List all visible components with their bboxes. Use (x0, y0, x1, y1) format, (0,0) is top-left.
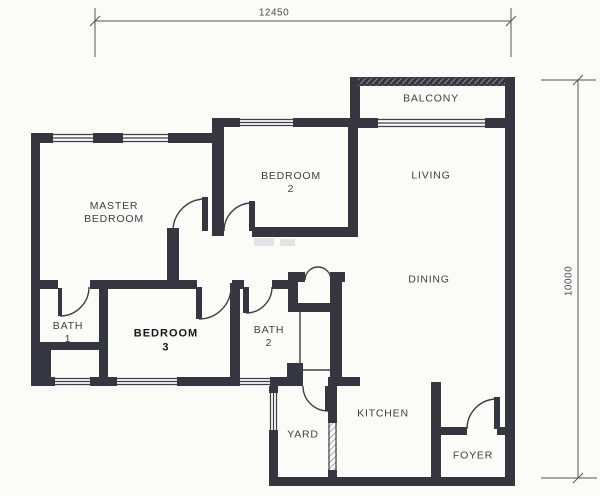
room-label-line: 2 (261, 183, 321, 196)
window-bath1 (55, 377, 90, 386)
ghost-mark (254, 238, 274, 246)
room-label-line: 1 (53, 333, 83, 346)
wall-bedroom2-right (348, 118, 358, 237)
door-leaf-bath2 (243, 287, 249, 313)
wall-kitchen-top (328, 377, 360, 386)
door-arc-foyer-entrance (467, 399, 497, 429)
room-label-line: 2 (254, 337, 284, 350)
wall-bottom-right-wing (269, 477, 515, 486)
door-arc-bedroom2 (224, 203, 252, 231)
room-label-kitchen: KITCHEN (357, 407, 409, 420)
room-label-line: BEDROOM (84, 213, 144, 226)
room-label-balcony: BALCONY (403, 92, 459, 105)
window-yard-left (269, 393, 278, 430)
door-arc-bath2 (246, 287, 272, 313)
room-label-master-bedroom: MASTER BEDROOM (84, 200, 144, 226)
room-label-line: LIVING (411, 169, 450, 182)
room-label-line: BALCONY (403, 92, 459, 105)
arch-niche (305, 267, 331, 280)
room-label-line: BATH (53, 320, 83, 333)
room-label-line: DINING (408, 273, 450, 286)
room-label-bedroom-3: BEDROOM 3 (134, 327, 198, 355)
door-leaf-foyer (494, 397, 500, 429)
room-label-line: BEDROOM (134, 327, 198, 341)
door-leaf-bedroom3 (196, 287, 202, 319)
wall-bath1-bedroom3 (99, 283, 108, 386)
room-label-line: BATH (254, 324, 284, 337)
window-bedroom2 (240, 118, 293, 127)
wall-bedroom2-left (212, 118, 224, 236)
room-label-foyer: FOYER (453, 449, 493, 462)
wall-bedroom2-south (252, 227, 358, 237)
wall-master-east-lower (167, 228, 179, 287)
wall-mid-right (330, 272, 342, 377)
room-label-dining: DINING (408, 273, 450, 286)
room-label-line: FOYER (453, 449, 493, 462)
room-label-line: MASTER (84, 200, 144, 213)
window-yard-kitchen (328, 423, 337, 470)
room-label-bedroom-2: BEDROOM 2 (261, 170, 321, 196)
shaft (300, 312, 330, 370)
wall-right-exterior (505, 77, 515, 486)
room-label-line: YARD (287, 428, 319, 441)
wall-bedroom3-bath2 (230, 283, 240, 386)
wall-hall-seg1 (31, 280, 58, 289)
wall-foyer-top (441, 427, 467, 435)
window-bath2 (240, 377, 270, 386)
room-label-line: BEDROOM (261, 170, 321, 183)
door-arc-yard (303, 386, 328, 411)
ghost-mark (280, 239, 295, 246)
ghost-marks (254, 238, 295, 246)
window-master-1 (53, 133, 93, 143)
wall-bath1-stub (38, 350, 51, 380)
wall-niche-bottom (290, 303, 330, 312)
window-balcony-railing (358, 77, 505, 86)
dimension-width-label: 12450 (259, 8, 289, 19)
window-living-sliding (378, 118, 485, 128)
floor-plan: MASTER BEDROOM BEDROOM 2 BEDROOM 3 BATH … (0, 0, 600, 496)
room-label-bath-2: BATH 2 (254, 324, 284, 350)
room-label-bath-1: BATH 1 (53, 320, 83, 346)
wall-left-exterior (31, 133, 40, 386)
window-bedroom3 (117, 377, 177, 386)
wall-foyer-left (431, 382, 441, 486)
floor-plan-drawing (0, 0, 600, 496)
door-arc-bedroom3 (199, 287, 231, 319)
door-arc-master (173, 199, 205, 231)
window-master-2 (123, 133, 168, 143)
door-arc-bath1 (60, 287, 89, 316)
room-label-line: 3 (134, 341, 198, 355)
door-leaf-yard (325, 386, 330, 411)
room-label-yard: YARD (287, 428, 319, 441)
door-leaf-bath1 (58, 288, 62, 316)
wall-hall-seg4 (272, 280, 290, 289)
room-label-line: KITCHEN (357, 407, 409, 420)
dimension-lines (90, 8, 597, 483)
room-label-living: LIVING (411, 169, 450, 182)
dimension-height-label: 10000 (564, 266, 575, 296)
door-leaf-bedroom2 (249, 201, 255, 231)
door-leaf-master (202, 197, 208, 231)
